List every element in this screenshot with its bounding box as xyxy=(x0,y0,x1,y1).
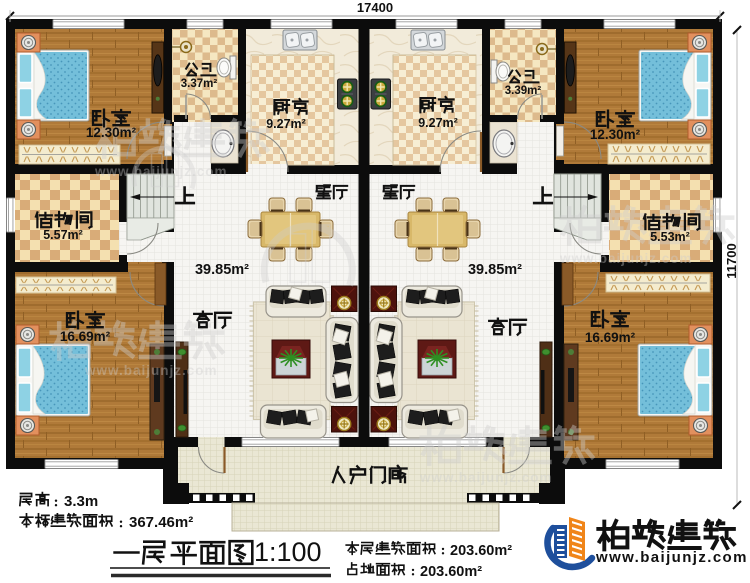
svg-text:9.27m²: 9.27m² xyxy=(418,116,458,130)
svg-text:www.baijunjz.com: www.baijunjz.com xyxy=(94,164,228,179)
svg-text:12.30m²: 12.30m² xyxy=(590,127,641,142)
svg-text:5.57m²: 5.57m² xyxy=(43,228,83,242)
svg-text:www.baijunjz.com: www.baijunjz.com xyxy=(84,363,218,378)
svg-text:3.39m²: 3.39m² xyxy=(505,85,542,97)
svg-text:17400: 17400 xyxy=(357,0,393,15)
svg-text:www.baijunjz.com: www.baijunjz.com xyxy=(559,251,693,266)
svg-text:367.46m²: 367.46m² xyxy=(129,514,193,531)
svg-text:3.37m²: 3.37m² xyxy=(181,78,218,90)
svg-text:1:100: 1:100 xyxy=(254,537,322,567)
svg-text:16.69m²: 16.69m² xyxy=(585,330,636,345)
svg-text:203.60m²: 203.60m² xyxy=(420,564,482,580)
svg-text:www.baijunjz.com: www.baijunjz.com xyxy=(419,470,553,485)
svg-text:3.3m: 3.3m xyxy=(64,493,98,510)
svg-text:16.69m²: 16.69m² xyxy=(60,329,111,344)
svg-text:5.53m²: 5.53m² xyxy=(650,230,690,244)
svg-text:203.60m²: 203.60m² xyxy=(450,543,512,559)
svg-text:39.85m²: 39.85m² xyxy=(195,262,249,278)
svg-text:11700: 11700 xyxy=(724,243,739,278)
svg-text:www.baijunjz.com: www.baijunjz.com xyxy=(595,549,748,566)
svg-text:9.27m²: 9.27m² xyxy=(266,117,306,131)
svg-text:39.85m²: 39.85m² xyxy=(468,262,522,278)
svg-text:12.30m²: 12.30m² xyxy=(86,125,137,140)
